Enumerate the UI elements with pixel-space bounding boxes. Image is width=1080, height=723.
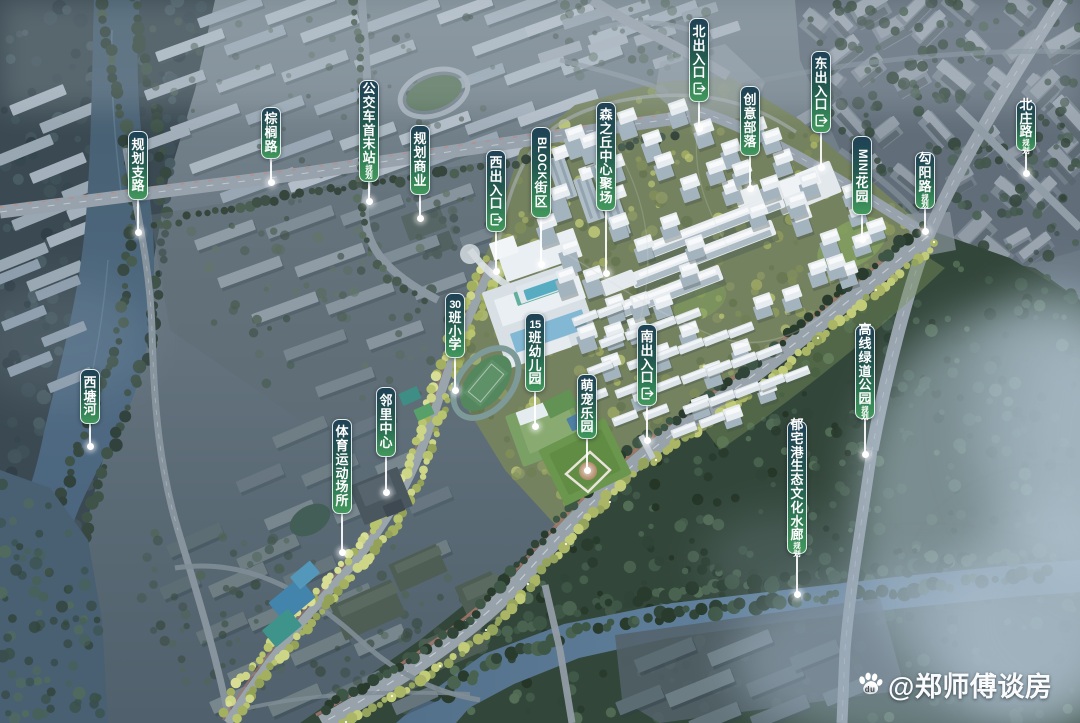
svg-text:du: du [865,685,876,694]
